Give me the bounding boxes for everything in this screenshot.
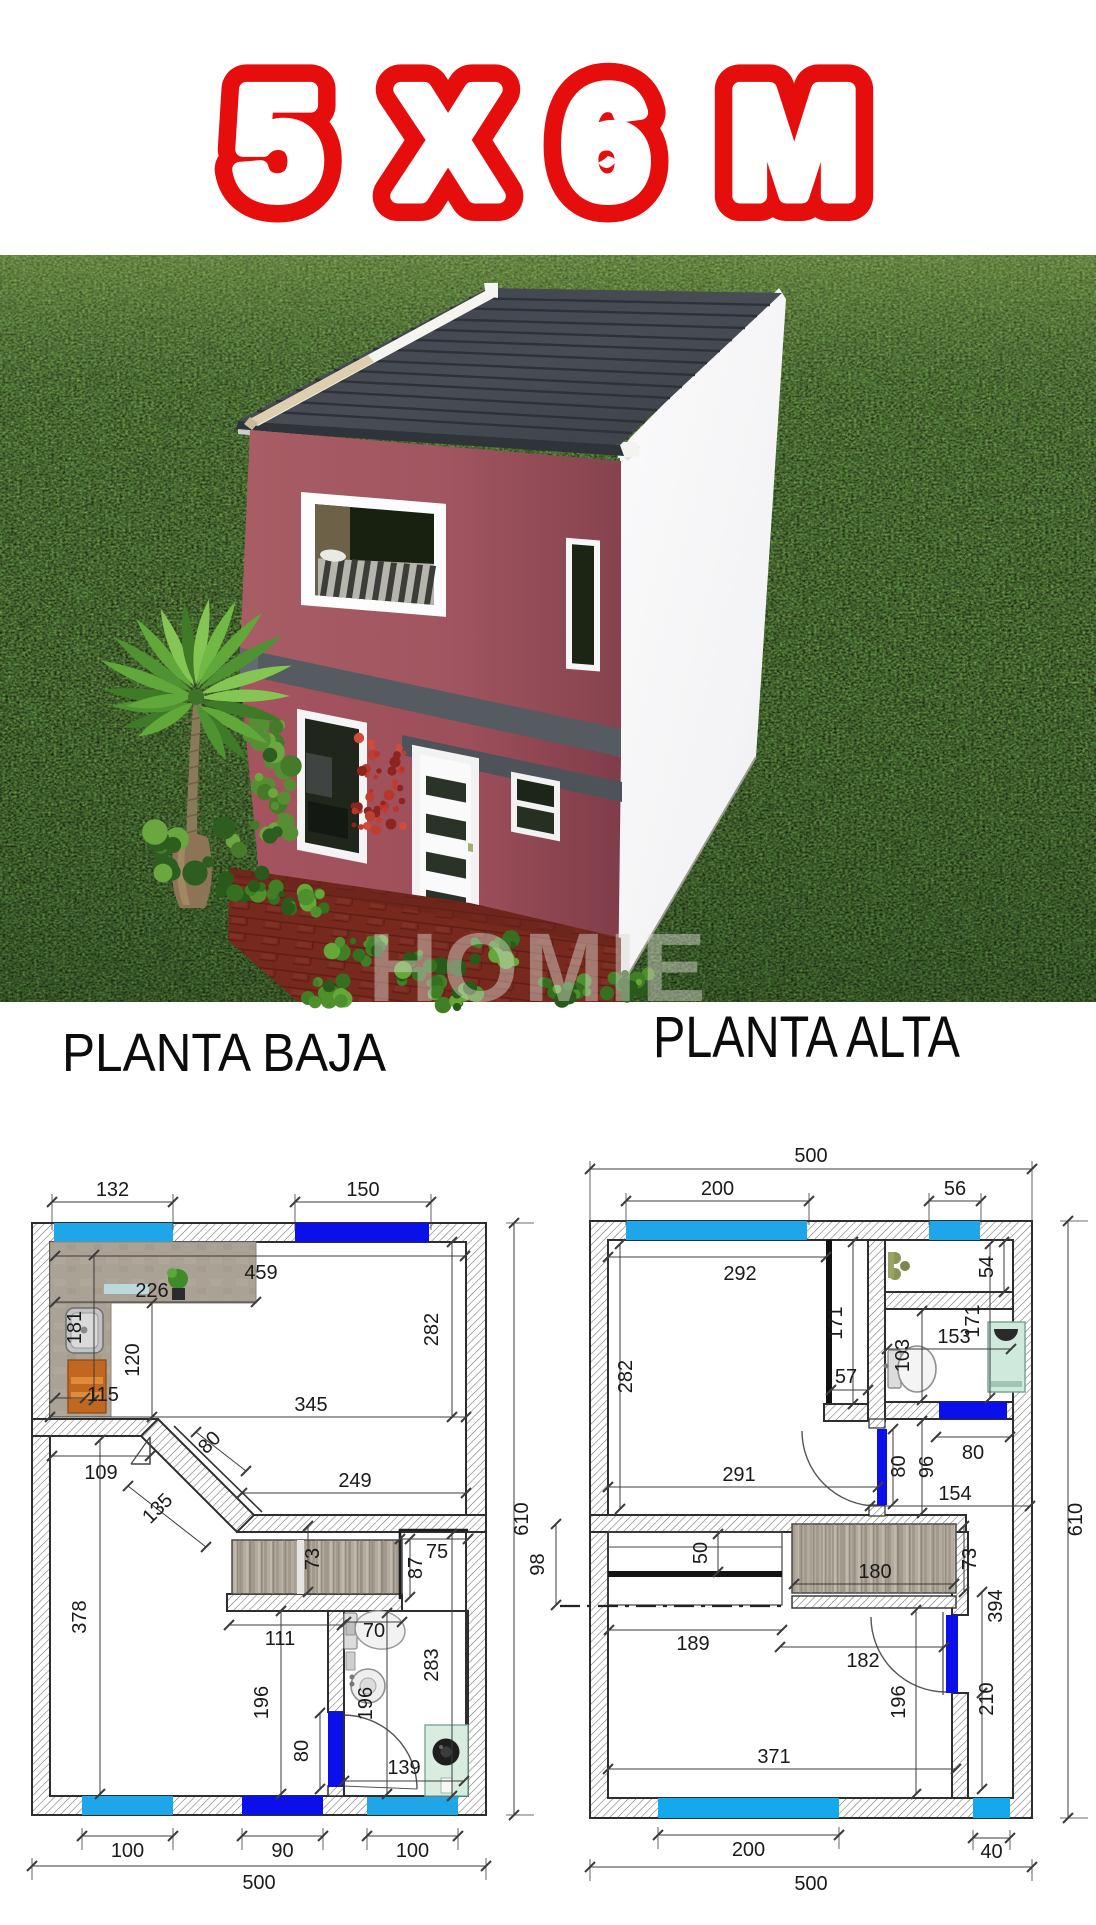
- svg-text:171: 171: [825, 1306, 847, 1339]
- svg-text:98: 98: [527, 1553, 549, 1575]
- svg-text:80: 80: [291, 1740, 313, 1762]
- svg-text:X: X: [396, 56, 499, 229]
- svg-text:378: 378: [69, 1600, 91, 1633]
- svg-text:371: 371: [757, 1746, 790, 1768]
- svg-text:171: 171: [962, 1304, 984, 1337]
- svg-text:181: 181: [64, 1311, 86, 1344]
- svg-text:610: 610: [1065, 1503, 1087, 1536]
- svg-text:115: 115: [87, 1384, 119, 1406]
- svg-text:283: 283: [421, 1648, 443, 1681]
- svg-text:75: 75: [426, 1541, 448, 1563]
- svg-text:196: 196: [355, 1687, 377, 1720]
- svg-text:PLANTA BAJA: PLANTA BAJA: [62, 1023, 386, 1083]
- svg-text:132: 132: [96, 1179, 129, 1201]
- svg-text:103: 103: [892, 1339, 914, 1372]
- svg-text:345: 345: [294, 1394, 327, 1416]
- svg-text:282: 282: [615, 1360, 637, 1393]
- svg-text:90: 90: [271, 1840, 293, 1862]
- svg-text:292: 292: [723, 1263, 756, 1285]
- svg-text:249: 249: [338, 1470, 371, 1492]
- svg-text:226: 226: [135, 1280, 168, 1302]
- svg-text:500: 500: [794, 1145, 827, 1167]
- svg-text:56: 56: [944, 1178, 966, 1200]
- svg-text:100: 100: [396, 1840, 429, 1862]
- svg-text:50: 50: [690, 1542, 712, 1564]
- svg-text:150: 150: [346, 1179, 379, 1201]
- svg-text:80: 80: [888, 1455, 910, 1477]
- svg-text:40: 40: [980, 1841, 1002, 1863]
- svg-text:73: 73: [959, 1548, 981, 1570]
- svg-text:459: 459: [244, 1262, 277, 1284]
- svg-text:500: 500: [242, 1872, 275, 1894]
- svg-text:5: 5: [235, 56, 321, 229]
- svg-text:100: 100: [111, 1840, 144, 1862]
- svg-text:154: 154: [938, 1483, 971, 1505]
- svg-text:57: 57: [835, 1366, 857, 1388]
- svg-text:6: 6: [563, 56, 649, 229]
- svg-text:189: 189: [676, 1633, 709, 1655]
- svg-text:200: 200: [732, 1839, 765, 1861]
- svg-text:210: 210: [976, 1682, 998, 1715]
- svg-text:73: 73: [302, 1548, 324, 1570]
- svg-text:200: 200: [701, 1178, 734, 1200]
- svg-text:610: 610: [511, 1502, 533, 1535]
- svg-text:182: 182: [846, 1650, 879, 1672]
- svg-text:394: 394: [985, 1589, 1007, 1622]
- svg-text:291: 291: [722, 1464, 755, 1486]
- svg-text:196: 196: [251, 1686, 273, 1719]
- svg-text:54: 54: [976, 1256, 998, 1278]
- svg-text:PLANTA ALTA: PLANTA ALTA: [653, 1005, 960, 1070]
- svg-text:120: 120: [122, 1343, 144, 1376]
- svg-text:70: 70: [363, 1620, 385, 1642]
- svg-text:87: 87: [405, 1557, 427, 1579]
- svg-text:111: 111: [265, 1628, 295, 1650]
- svg-text:282: 282: [421, 1313, 443, 1346]
- svg-text:139: 139: [387, 1757, 420, 1779]
- svg-text:109: 109: [84, 1462, 117, 1484]
- svg-text:196: 196: [888, 1685, 910, 1718]
- svg-text:96: 96: [916, 1456, 938, 1478]
- svg-text:180: 180: [858, 1561, 891, 1583]
- svg-text:M: M: [729, 56, 858, 229]
- svg-text:80: 80: [962, 1442, 984, 1464]
- svg-text:500: 500: [794, 1873, 827, 1895]
